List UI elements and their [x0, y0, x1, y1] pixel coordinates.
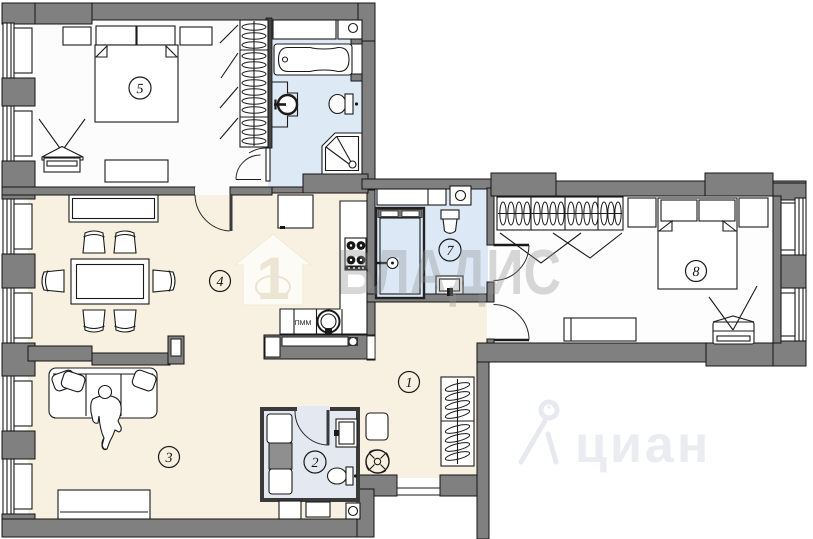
svg-text:1: 1 [406, 376, 413, 391]
svg-text:3: 3 [165, 451, 173, 466]
svg-text:5: 5 [137, 82, 144, 97]
svg-text:ВЛАДИС: ВЛАДИС [337, 236, 561, 308]
svg-text:8: 8 [693, 265, 700, 280]
svg-text:циан: циан [575, 416, 711, 474]
svg-text:4: 4 [217, 275, 224, 290]
svg-text:ПММ: ПММ [295, 320, 312, 327]
svg-text:2: 2 [312, 456, 319, 471]
